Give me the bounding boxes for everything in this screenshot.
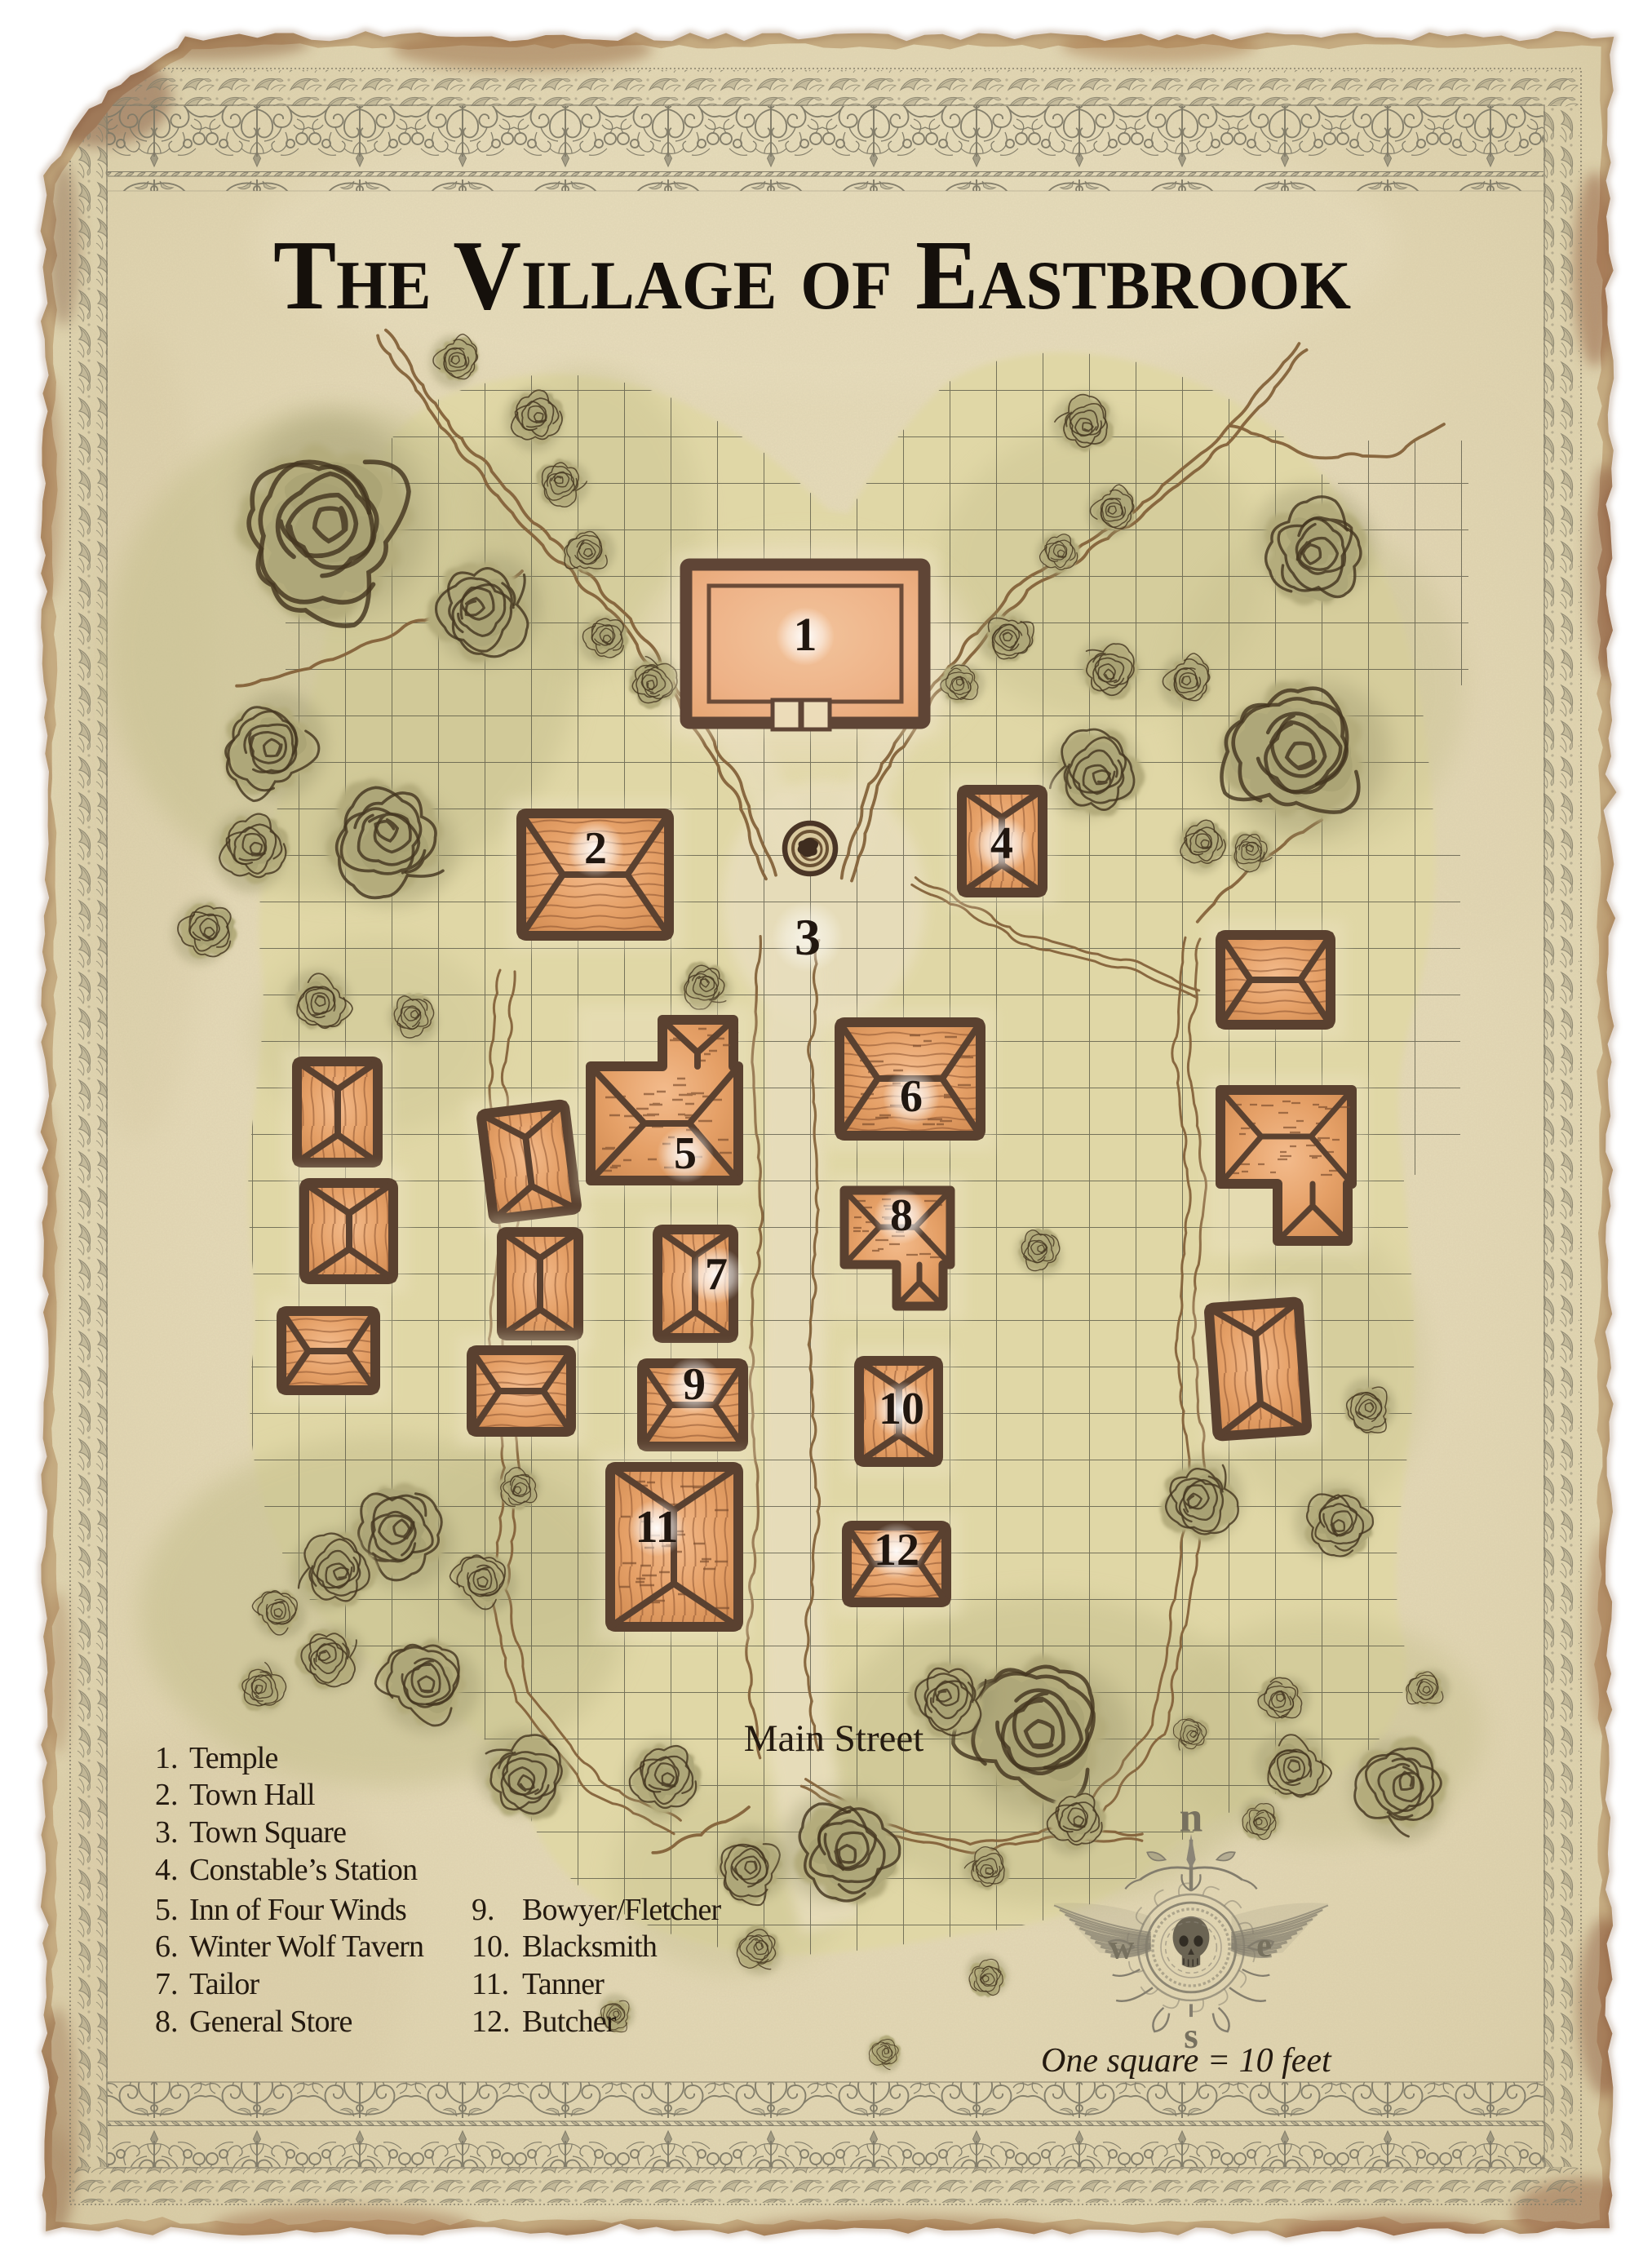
svg-text:Town Hall: Town Hall <box>189 1778 315 1812</box>
svg-text:Temple: Temple <box>189 1741 278 1775</box>
svg-text:2.: 2. <box>155 1778 179 1812</box>
svg-text:3.: 3. <box>155 1815 179 1850</box>
svg-text:General Store: General Store <box>189 2005 352 2039</box>
svg-text:Tailor: Tailor <box>189 1967 260 2001</box>
svg-text:8: 8 <box>890 1190 913 1241</box>
svg-text:11.: 11. <box>472 1967 509 2001</box>
svg-text:9.: 9. <box>472 1893 495 1927</box>
svg-text:5: 5 <box>674 1128 697 1179</box>
svg-text:7: 7 <box>705 1249 728 1300</box>
svg-text:6: 6 <box>900 1071 923 1122</box>
svg-text:Inn of Four Winds: Inn of Four Winds <box>189 1893 406 1927</box>
svg-text:4: 4 <box>990 818 1013 869</box>
svg-text:4.: 4. <box>155 1853 179 1887</box>
svg-text:Constable’s Station: Constable’s Station <box>189 1853 418 1887</box>
svg-text:Blacksmith: Blacksmith <box>522 1929 658 1964</box>
svg-text:10: 10 <box>879 1384 924 1434</box>
svg-text:Main Street: Main Street <box>744 1717 924 1760</box>
svg-text:1: 1 <box>794 608 817 661</box>
svg-text:12.: 12. <box>472 2005 511 2039</box>
svg-text:8.: 8. <box>155 2005 179 2039</box>
svg-text:10.: 10. <box>472 1929 511 1964</box>
svg-text:e: e <box>1256 1926 1272 1965</box>
svg-text:s: s <box>1184 2015 1198 2056</box>
svg-text:Winter Wolf Tavern: Winter Wolf Tavern <box>189 1929 424 1964</box>
svg-text:1.: 1. <box>155 1741 179 1775</box>
svg-text:Bowyer/Fletcher: Bowyer/Fletcher <box>522 1893 722 1927</box>
svg-text:3: 3 <box>795 908 821 966</box>
svg-text:5.: 5. <box>155 1893 179 1927</box>
svg-text:w: w <box>1109 1928 1135 1966</box>
svg-text:7.: 7. <box>155 1967 179 2001</box>
svg-text:Town Square: Town Square <box>189 1815 346 1850</box>
svg-text:9: 9 <box>683 1359 706 1410</box>
svg-text:The Village of Eastbrook: The Village of Eastbrook <box>273 220 1351 330</box>
svg-text:12: 12 <box>874 1525 919 1575</box>
svg-text:Butcher: Butcher <box>522 2005 617 2039</box>
svg-text:11: 11 <box>636 1502 679 1553</box>
svg-text:Tanner: Tanner <box>522 1967 605 2001</box>
svg-text:6.: 6. <box>155 1929 179 1964</box>
svg-text:2: 2 <box>584 823 607 874</box>
svg-text:n: n <box>1180 1795 1203 1841</box>
